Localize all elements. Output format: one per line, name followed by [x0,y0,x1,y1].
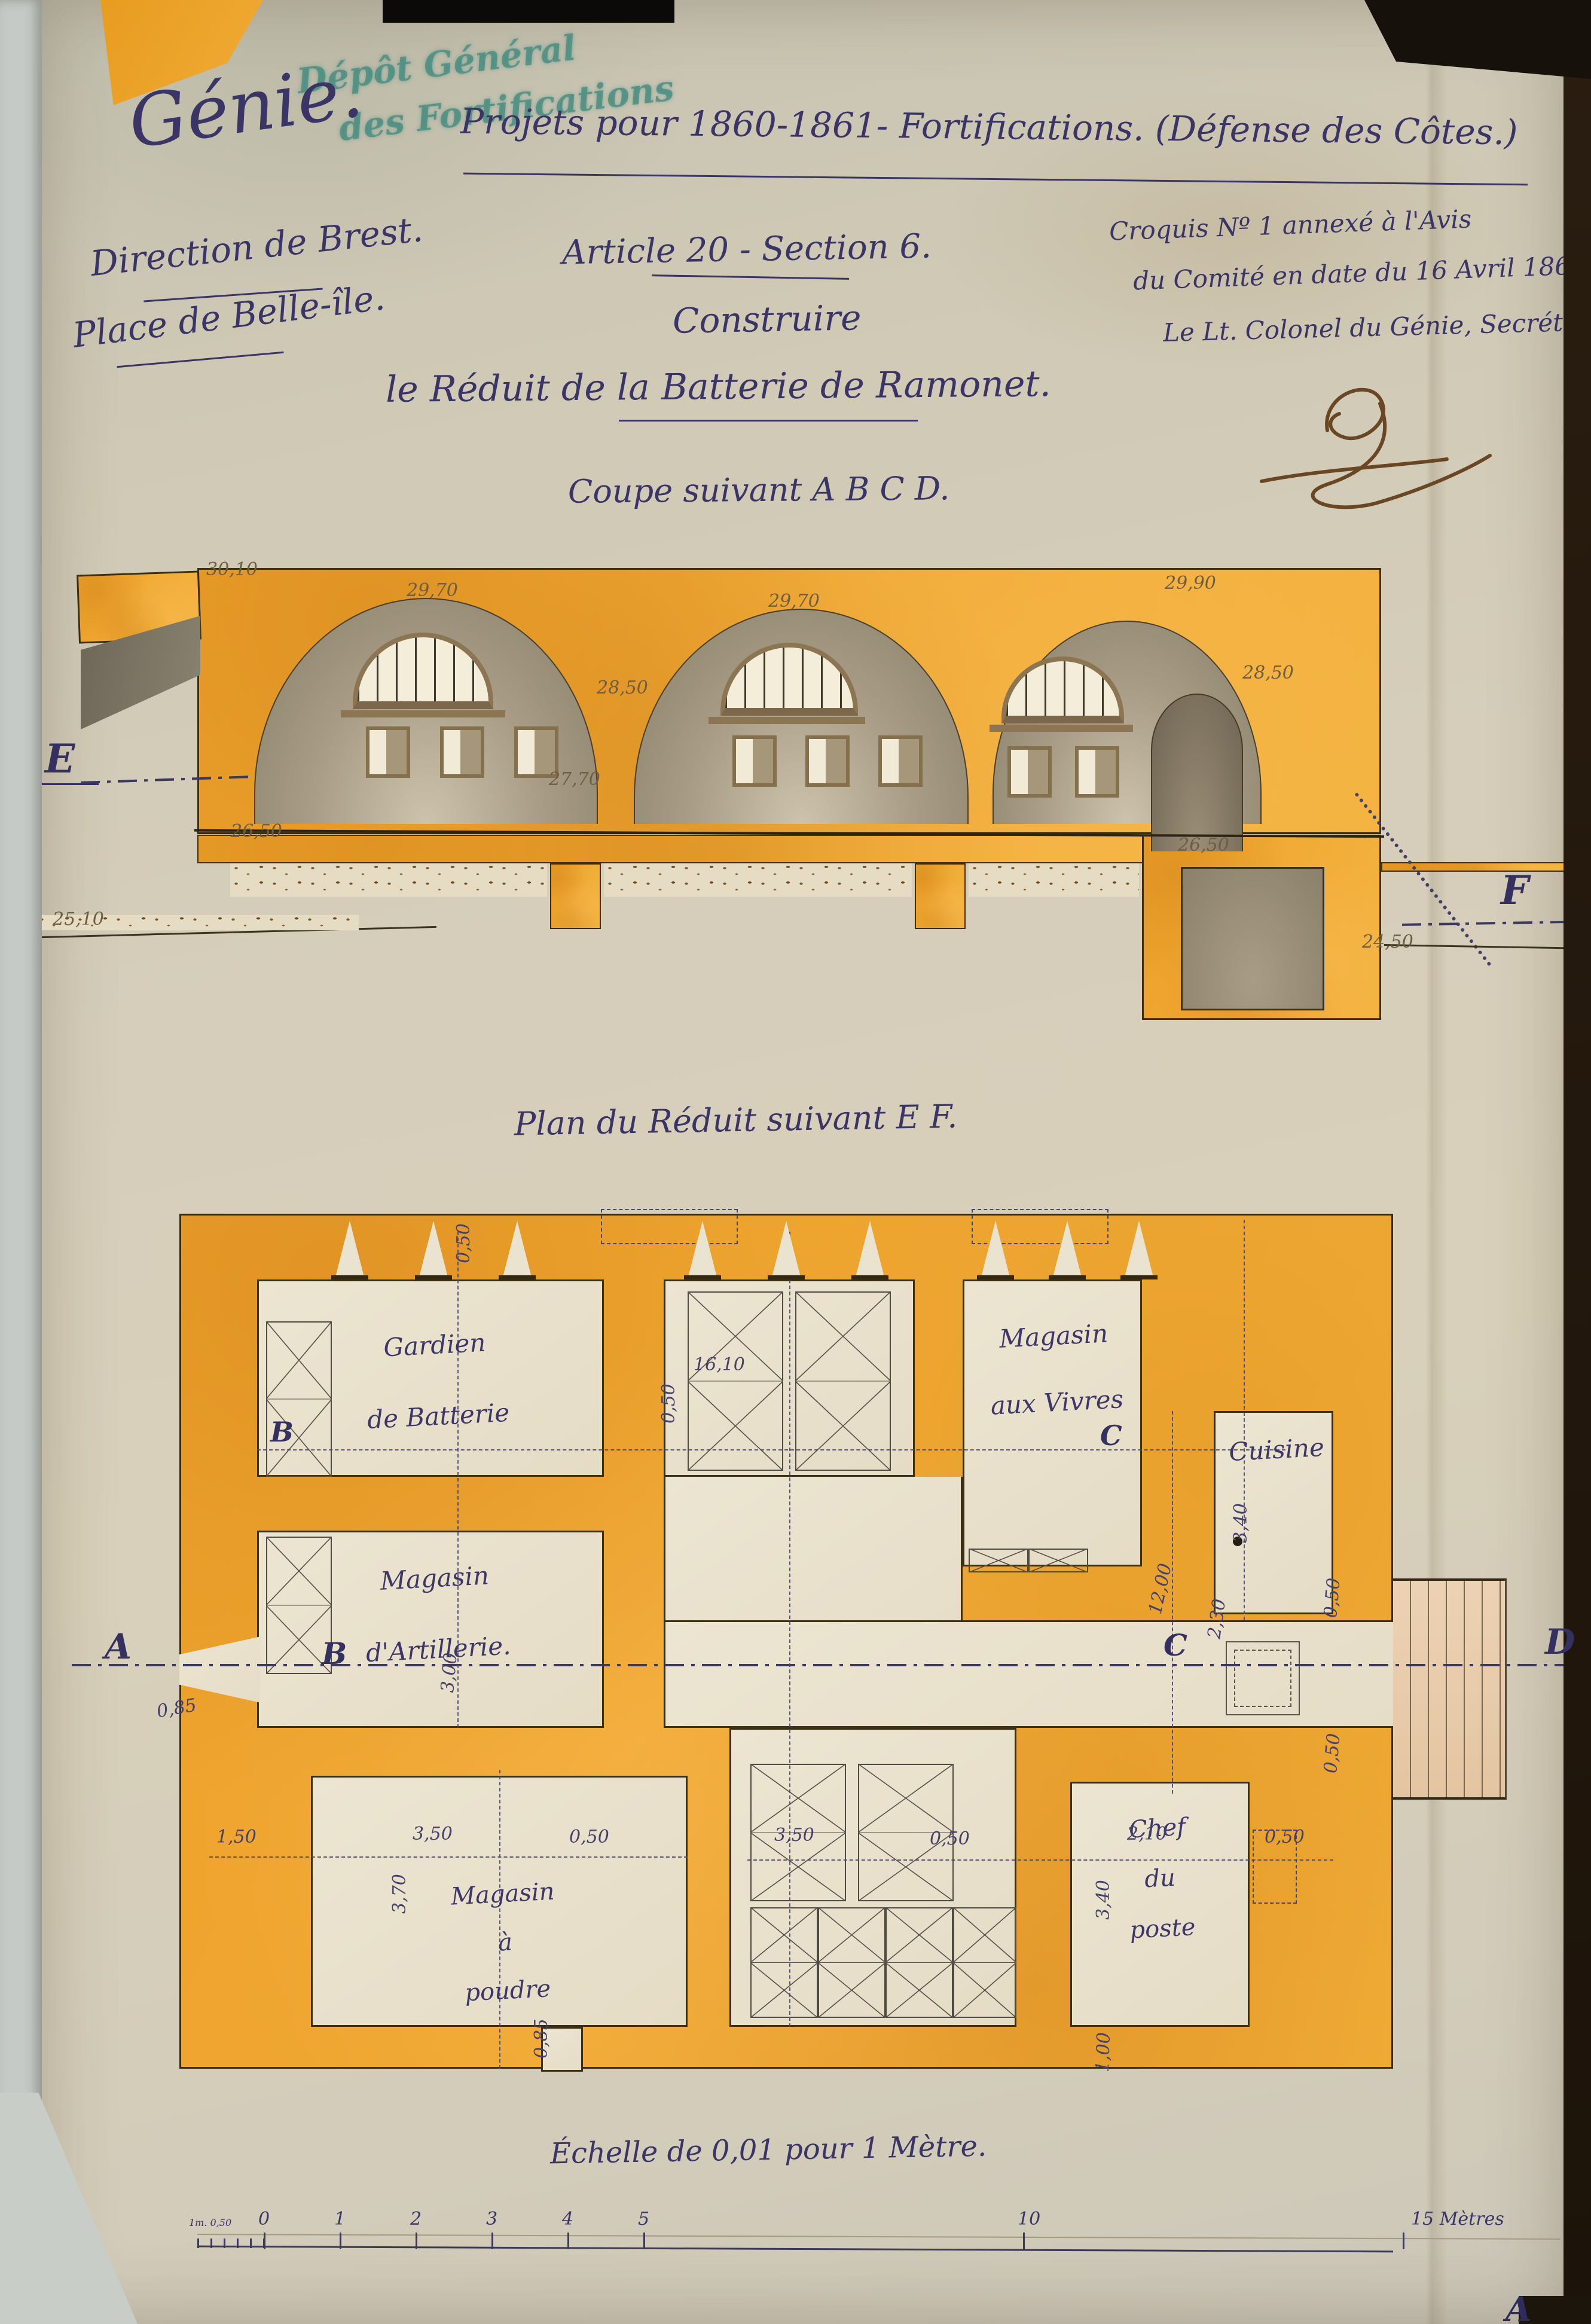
dimension-label: 0,85 [155,1694,198,1722]
vent-cone [419,1221,448,1279]
vent-cone [1124,1221,1154,1279]
dimension-label: 0,85 [531,2018,552,2059]
scale-tick [1023,2233,1025,2249]
scale-tick-label: 4 [562,2209,573,2230]
axis-letter-b: B [270,1416,294,1448]
vent-cone-base [977,1275,1014,1279]
dimension-label: 3,40 [1093,1880,1114,1920]
scale-tick [340,2233,341,2249]
annotation-overlay: 16,100,500,503,4012,002,300,500,500,853,… [0,0,1591,2324]
scale-tick-label: 5 [638,2209,649,2230]
vent-cone-base [1049,1275,1086,1279]
scale-tick-label: 3 [486,2209,497,2230]
dimension-label: 3,50 [774,1825,814,1846]
dimension-label: 2,30 [1204,1598,1230,1640]
vent-cone-base [768,1275,805,1279]
axis-letter-a: A [105,1626,132,1667]
scale-tick [491,2233,493,2249]
dimension-label: 1,50 [216,1827,256,1847]
scale-tick-label: 1 [334,2209,346,2230]
vent-cone [335,1221,365,1279]
dimension-label: 16,10 [694,1354,745,1375]
scale-tick [416,2233,417,2249]
scale-subtick [250,2239,252,2248]
scale-tick-label: 0 [258,2209,270,2230]
vent-cone-base [851,1275,888,1279]
axis-letter-c: C [1100,1419,1122,1452]
dimension-label: 0,50 [453,1223,474,1263]
scale-subtick [210,2239,212,2248]
scale-subtick [224,2239,225,2248]
dimension-label: 3,40 [1230,1503,1251,1543]
dimension-label: 3,00 [437,1652,462,1694]
underlying-sheet-left [0,0,42,2324]
vent-cone-base [1120,1275,1158,1279]
axis-letter-c: C [1164,1627,1187,1663]
dimension-label: 0,50 [930,1828,970,1849]
scale-tick [1403,2233,1404,2249]
corner-mark: A [1506,2290,1531,2324]
vent-cone-base [331,1275,368,1279]
scale-tick [567,2233,569,2249]
vent-cone [1052,1221,1082,1279]
vent-cone [855,1221,885,1279]
dimension-label: 0,50 [569,1827,609,1847]
scale-subtick [237,2239,239,2248]
dimension-label: 12,00 [1145,1562,1176,1616]
vent-cone-base [684,1275,721,1279]
vent-cone [502,1221,532,1279]
scale-tick-label: 2 [410,2209,422,2230]
vent-cone-base [499,1275,536,1279]
scale-sub-labels: 1m. 0,50 [189,2217,231,2228]
dimension-label: 0,50 [658,1384,679,1424]
scale-tick-label: 15 Mètres [1411,2209,1504,2230]
dimension-label: 3,50 [413,1824,453,1844]
dimension-label: 0,50 [1265,1827,1305,1847]
dimension-label: 0,50 [1320,1577,1345,1619]
scale-tick [643,2233,645,2249]
scale-subtick [263,2239,265,2248]
vent-cone [981,1221,1010,1279]
vent-cone-base [415,1275,452,1279]
dimension-label: 2,10 [1127,1824,1167,1844]
axis-letter-d: D [1545,1621,1575,1662]
table-gap-top [383,0,674,23]
scale-tick-label: 10 [1018,2209,1040,2230]
dimension-label: 3,70 [389,1874,410,1914]
vent-cone [771,1221,801,1279]
dimension-label: 1,00 [1092,2032,1114,2073]
dimension-label: 0,50 [1320,1733,1345,1775]
vent-cone [688,1221,717,1279]
scale-subtick [197,2239,199,2248]
axis-letter-b: B [322,1636,347,1671]
photograph-of-plan-document: Dépôt Général des Fortifications Génie. … [0,0,1591,2324]
